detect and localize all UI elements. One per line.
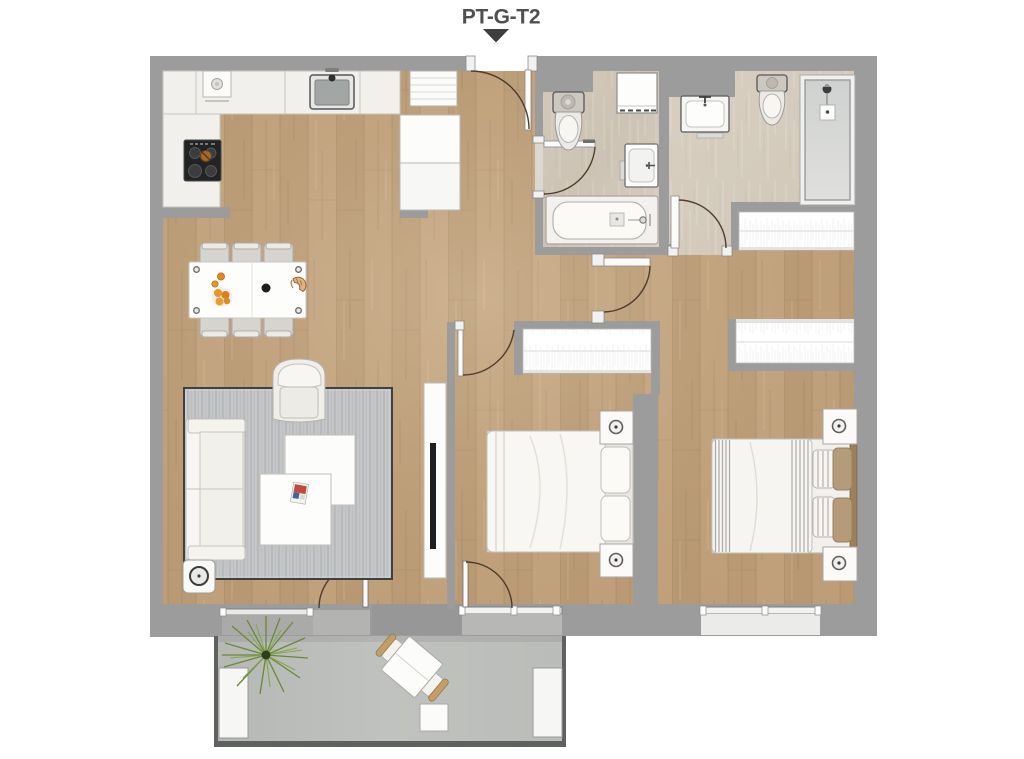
svg-text:PT-G-T2: PT-G-T2 [462,6,540,29]
